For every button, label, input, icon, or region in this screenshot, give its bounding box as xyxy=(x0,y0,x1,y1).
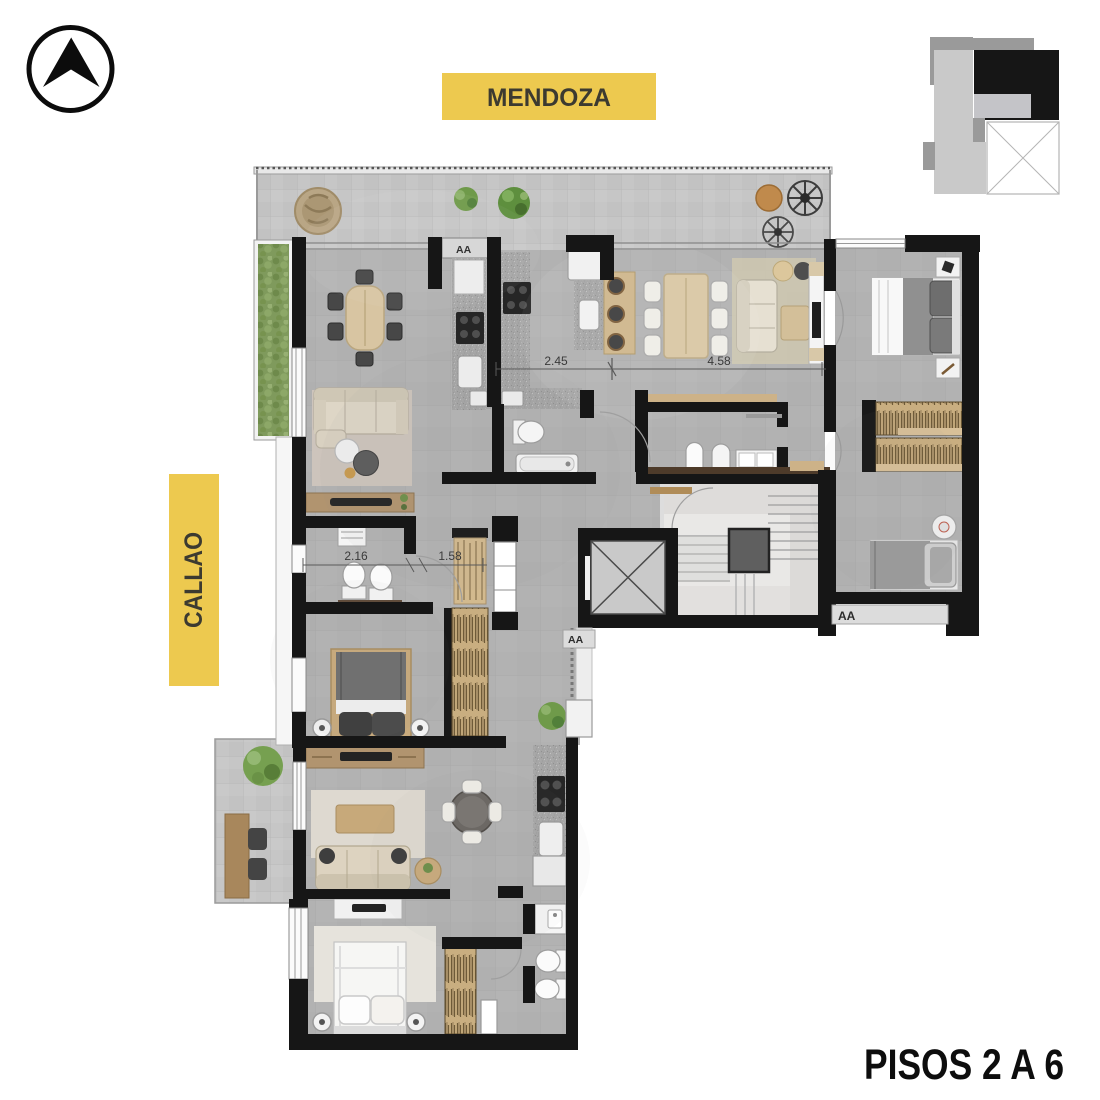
svg-text:2.45: 2.45 xyxy=(544,354,568,368)
svg-text:AA: AA xyxy=(838,609,856,623)
svg-text:1.58: 1.58 xyxy=(438,549,462,563)
svg-text:2.16: 2.16 xyxy=(344,549,368,563)
svg-text:CALLAO: CALLAO xyxy=(180,532,208,628)
svg-text:PISOS 2 A 6: PISOS 2 A 6 xyxy=(864,1041,1064,1089)
svg-text:AA: AA xyxy=(568,634,584,646)
svg-text:4.58: 4.58 xyxy=(707,354,731,368)
svg-text:MENDOZA: MENDOZA xyxy=(487,84,611,112)
